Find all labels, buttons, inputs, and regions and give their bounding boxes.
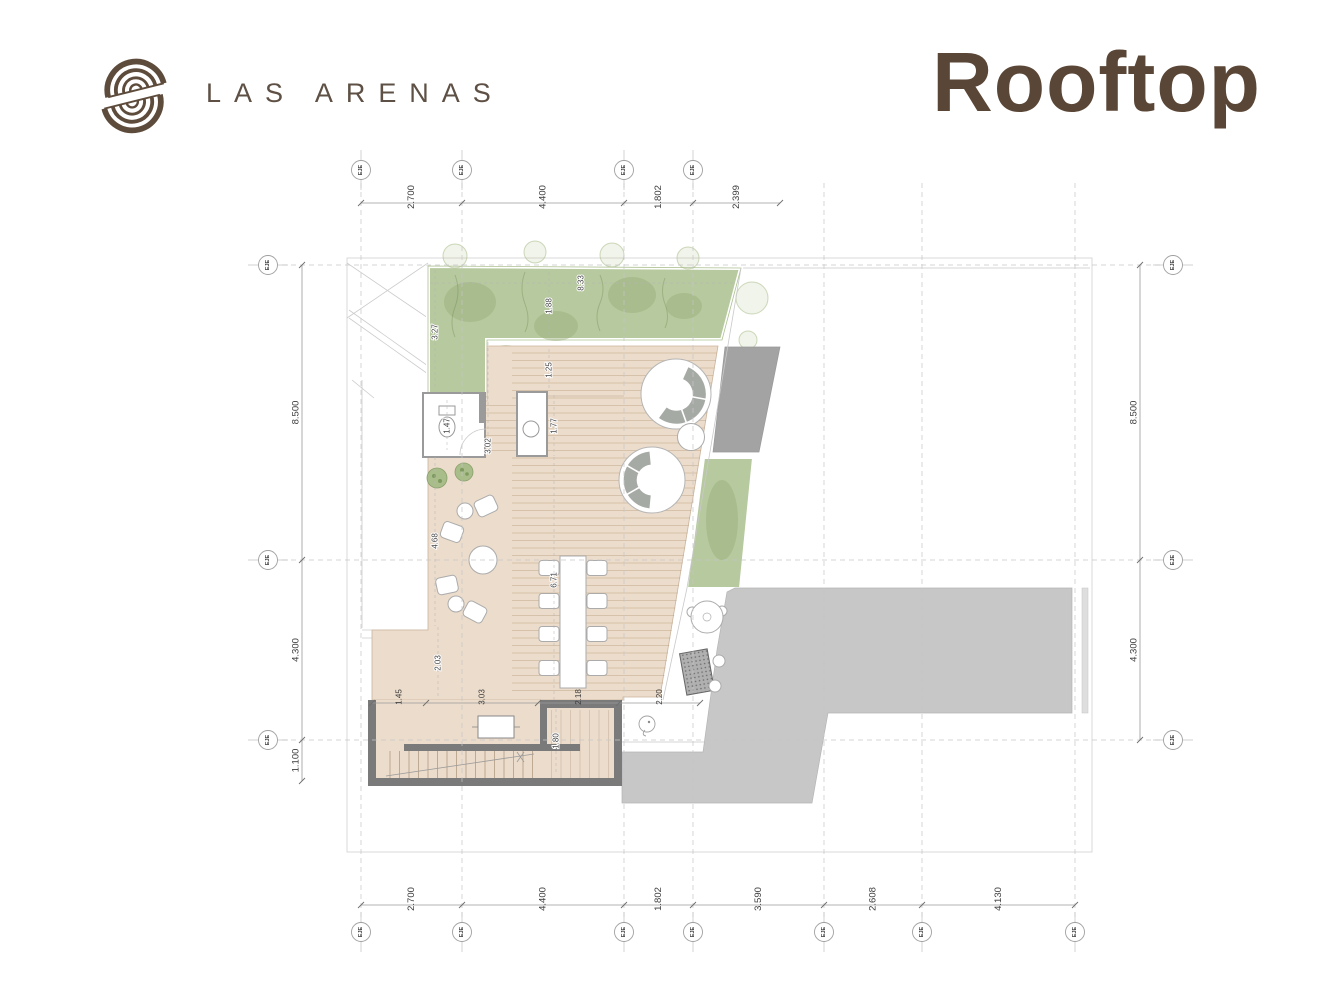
stairwell: [368, 700, 622, 786]
interior-dimension-label: 1.25: [545, 362, 554, 378]
coffee-table-small: [457, 503, 473, 519]
equipment-box: [478, 716, 514, 738]
adjacent-roof: [347, 263, 428, 638]
coffee-table-small-2: [448, 596, 464, 612]
edge-strip: [1082, 588, 1088, 713]
dimension-label: 2.399: [731, 185, 742, 209]
bathroom: [423, 393, 486, 457]
planter-2: [455, 463, 473, 481]
dimension-label: 2.18: [574, 689, 583, 705]
rooftop-plan-page: LAS ARENAS Rooftop: [0, 0, 1333, 1000]
side-table-round: [678, 424, 705, 451]
lower-roof-gray: [622, 588, 1072, 803]
lounge-pod-1: [641, 359, 711, 429]
interior-dimension-label: 6.71: [550, 572, 559, 588]
axis-marker-label: EJE: [919, 926, 925, 937]
lounge-pod-2: [619, 447, 685, 513]
drain-symbol: [639, 716, 655, 736]
dimension-label: 4.300: [1129, 638, 1140, 662]
dimension-label: 8.500: [1129, 401, 1140, 425]
dimension-label: 4.400: [538, 887, 549, 911]
floor-plan: 2.7004.4001.8022.3992.7004.4001.8023.590…: [0, 0, 1333, 1000]
interior-dimension-label: 1.77: [550, 418, 559, 434]
dimension-label: 2.608: [868, 887, 879, 911]
axis-marker-label: EJE: [621, 164, 627, 175]
bistro-table: [691, 601, 723, 633]
dimension-label: 1.45: [395, 689, 404, 705]
dimension-label: 1.100: [291, 749, 302, 773]
interior-dimension-label: 4.68: [431, 533, 440, 549]
dimension-label: 3.590: [753, 887, 764, 911]
axis-marker-label: EJE: [265, 259, 271, 270]
axis-marker-label: EJE: [1170, 554, 1176, 565]
axis-marker-label: EJE: [358, 164, 364, 175]
washroom: [517, 392, 547, 456]
interior-dimension-label: 3.27: [431, 324, 440, 340]
dimension-label: 4.130: [993, 887, 1004, 911]
interior-dimension-label: 1.47: [443, 418, 452, 434]
axis-marker-label: EJE: [1170, 259, 1176, 270]
dimension-label: 2.700: [406, 887, 417, 911]
axis-marker-label: EJE: [459, 926, 465, 937]
interior-dimension-label: 1.80: [552, 733, 561, 749]
axis-marker-label: EJE: [459, 164, 465, 175]
axis-marker-label: EJE: [690, 926, 696, 937]
neighbor-paving-upper: [713, 347, 780, 452]
dimension-label: 2.700: [406, 185, 417, 209]
axis-marker-label: EJE: [821, 926, 827, 937]
axis-marker-label: EJE: [1072, 926, 1078, 937]
interior-dimension-label: 3.02: [484, 438, 493, 454]
axis-marker-label: EJE: [358, 926, 364, 937]
interior-dimension-label: 1.88: [545, 298, 554, 314]
dimension-label: 3.03: [478, 689, 487, 705]
axis-marker-label: EJE: [265, 554, 271, 565]
axis-marker-label: EJE: [690, 164, 696, 175]
dimension-label: 4.300: [291, 638, 302, 662]
interior-dimension-label: 8.33: [577, 275, 586, 291]
dimension-label: 1.802: [653, 185, 664, 209]
dining-table: [560, 556, 586, 688]
dimension-label: 4.400: [538, 185, 549, 209]
dimension-label: 8.500: [291, 401, 302, 425]
dimension-label: 2.20: [655, 689, 664, 705]
axis-marker-label: EJE: [265, 734, 271, 745]
dimension-label: 1.802: [653, 887, 664, 911]
sink-icon: [523, 421, 539, 437]
neighbor-garden-strip: [687, 458, 753, 588]
axis-marker-label: EJE: [621, 926, 627, 937]
axis-marker-label: EJE: [1170, 734, 1176, 745]
planter-1: [427, 468, 447, 488]
interior-dimension-label: 2.03: [434, 655, 443, 671]
